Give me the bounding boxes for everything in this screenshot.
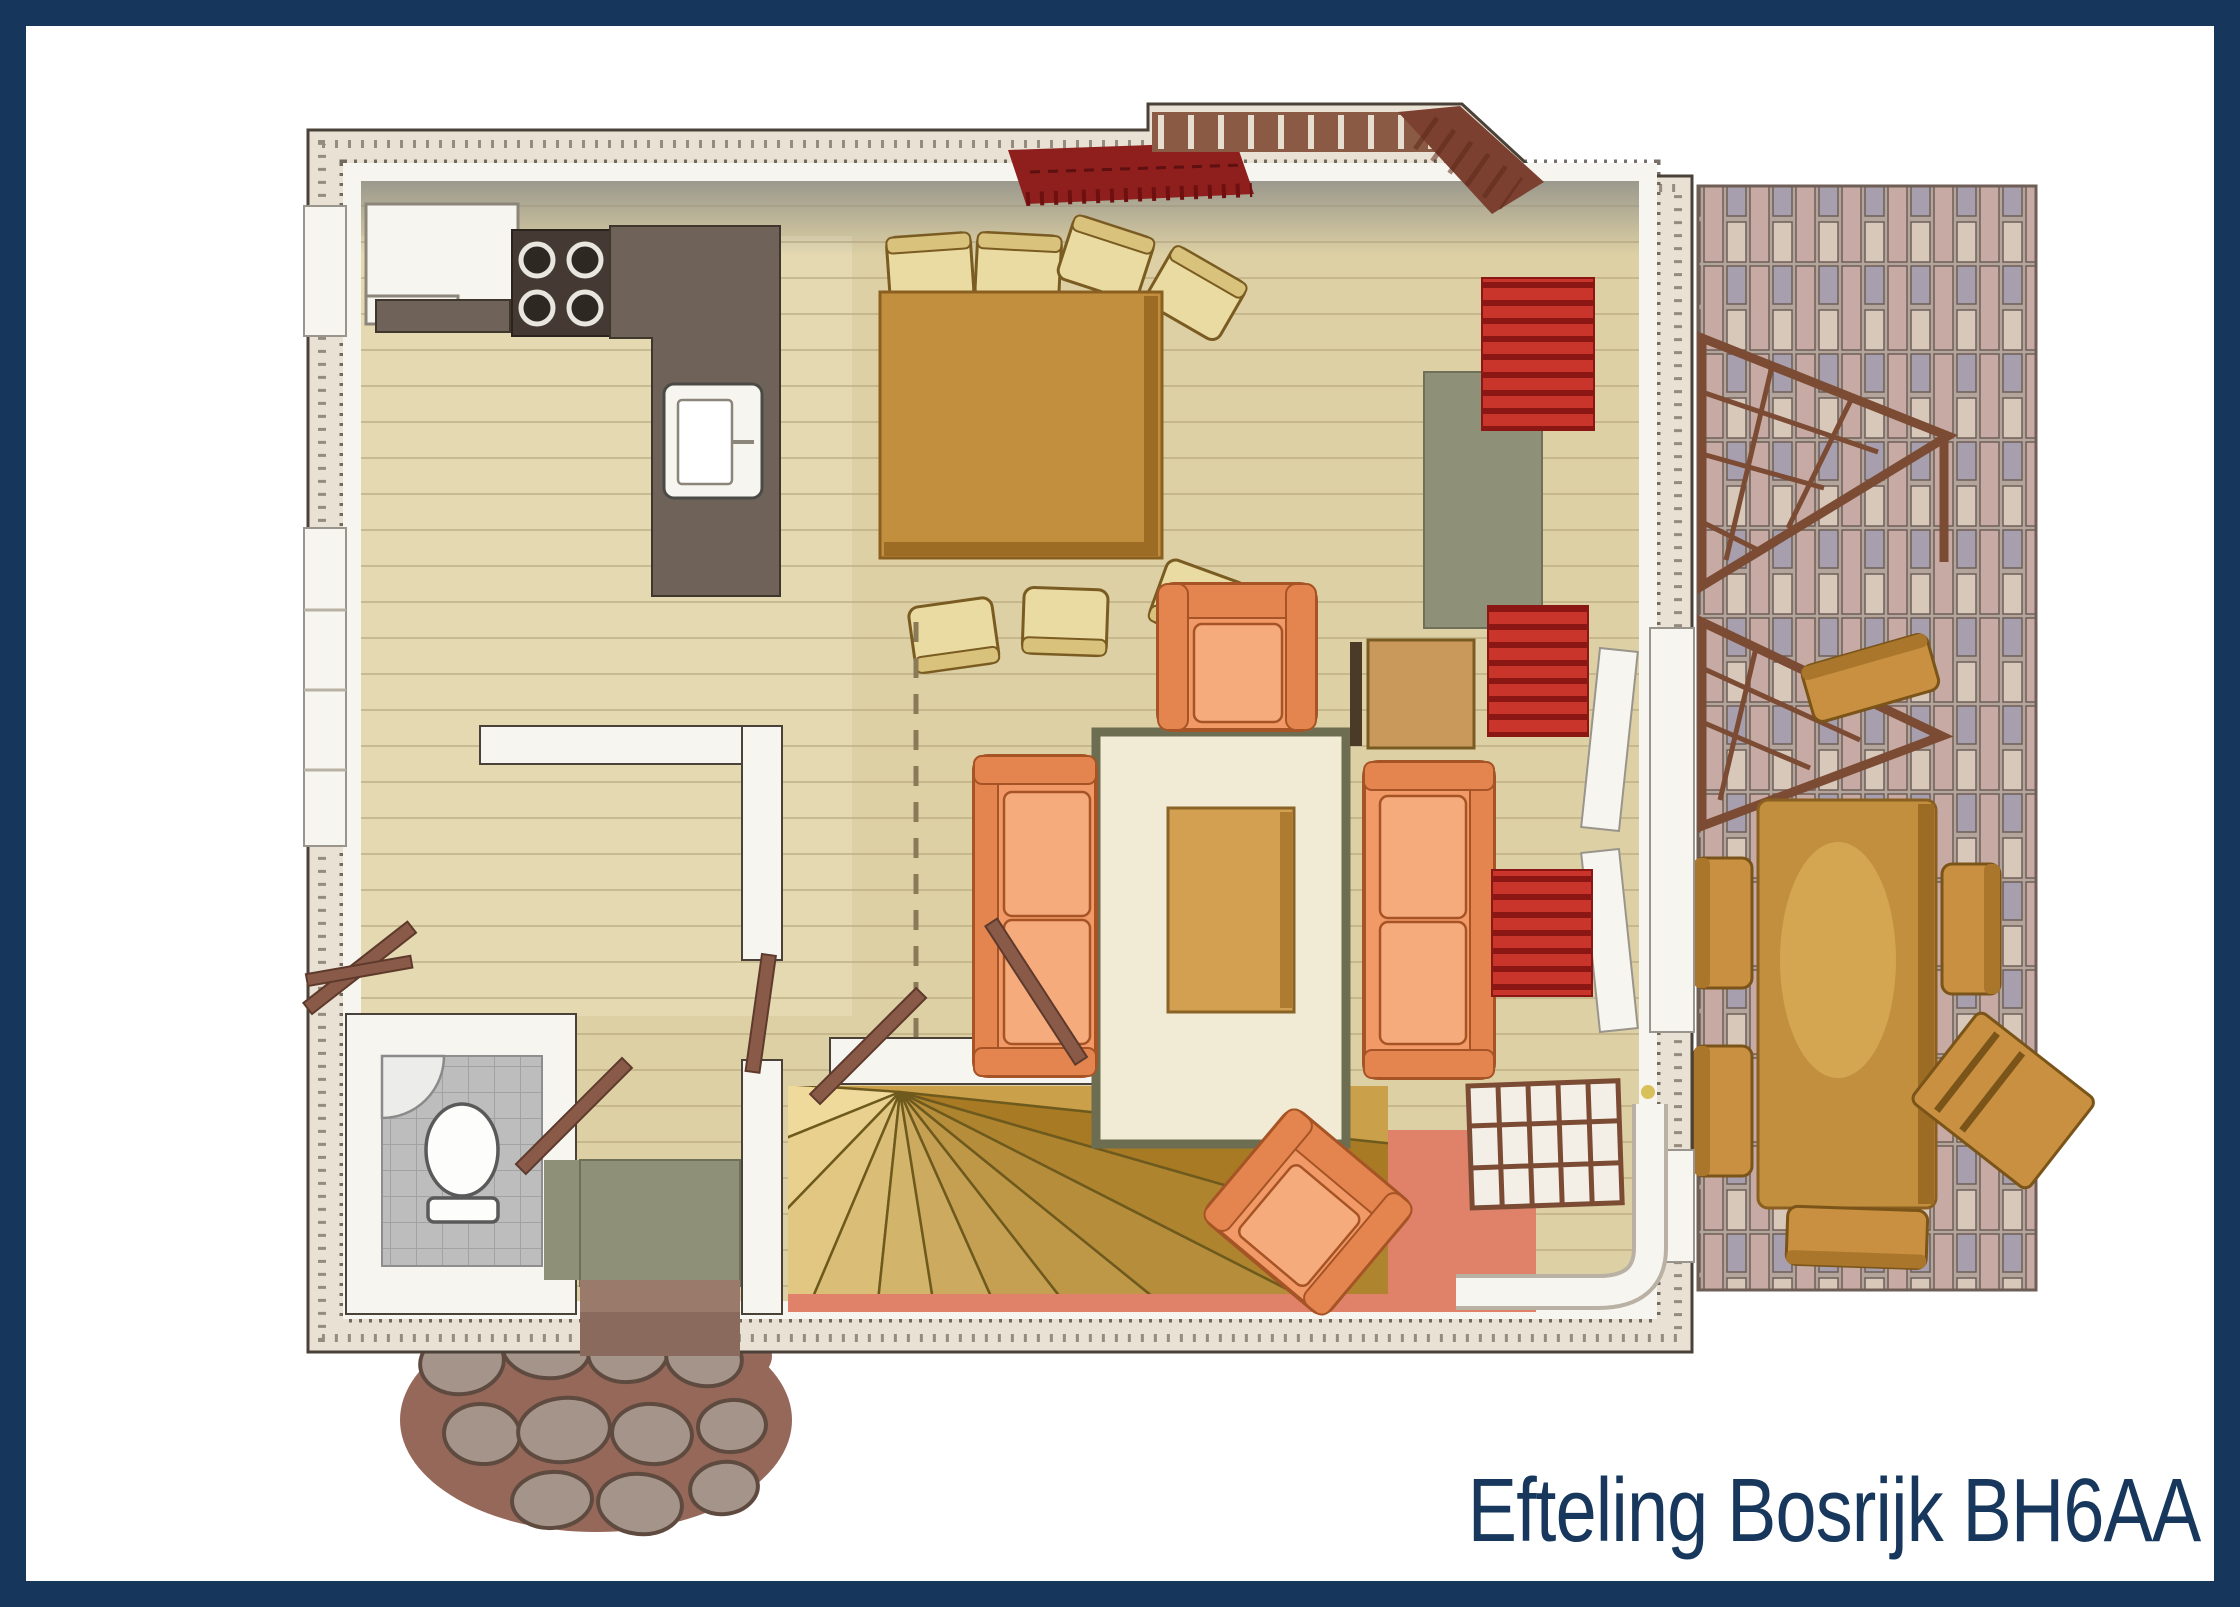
radiator-curtain-middle xyxy=(1488,606,1588,736)
door-handle xyxy=(1641,1085,1655,1099)
side-table xyxy=(1368,640,1474,748)
wc-door-opening xyxy=(544,1160,580,1280)
lattice-window xyxy=(1468,1081,1622,1208)
side-table-leg xyxy=(1350,642,1362,746)
partition-wall-vertical-upper xyxy=(742,726,782,960)
outdoor-chair xyxy=(1694,1046,1752,1176)
kitchen-counter-strip xyxy=(376,300,510,332)
coffee-table xyxy=(1168,808,1294,1012)
outdoor-chair xyxy=(1694,858,1752,988)
toilet xyxy=(426,1104,498,1196)
outdoor-chair xyxy=(1942,864,2000,994)
outdoor-chair xyxy=(1786,1206,1928,1269)
partition-wall-vertical-lower xyxy=(742,1060,782,1314)
wc xyxy=(346,1014,580,1314)
dining-table xyxy=(880,292,1162,558)
refrigerator-counter xyxy=(366,204,518,304)
partition-wall-horizontal xyxy=(480,726,780,764)
dining-chair xyxy=(1022,587,1108,656)
window-left-main xyxy=(304,528,346,846)
floor-plan-illustration xyxy=(0,0,2240,1607)
threshold xyxy=(580,1280,740,1314)
radiator-curtain-bottom xyxy=(1492,870,1592,996)
armchair-top xyxy=(1158,584,1316,730)
sofa-right xyxy=(1364,762,1494,1078)
terrace xyxy=(1694,186,2097,1290)
terrace-door-opening xyxy=(1650,628,1694,1032)
vestibule xyxy=(580,1160,740,1356)
sofa-left xyxy=(974,756,1096,1076)
radiator-curtain-top xyxy=(1482,278,1594,430)
caption: Efteling Bosrijk BH6AA xyxy=(1467,1460,2200,1563)
window-left-upper xyxy=(304,206,346,336)
vestibule-mat xyxy=(580,1160,740,1286)
screenshot-page: Efteling Bosrijk BH6AA xyxy=(0,0,2240,1607)
dining-chair xyxy=(908,597,1000,674)
entrance-opening xyxy=(580,1312,740,1356)
